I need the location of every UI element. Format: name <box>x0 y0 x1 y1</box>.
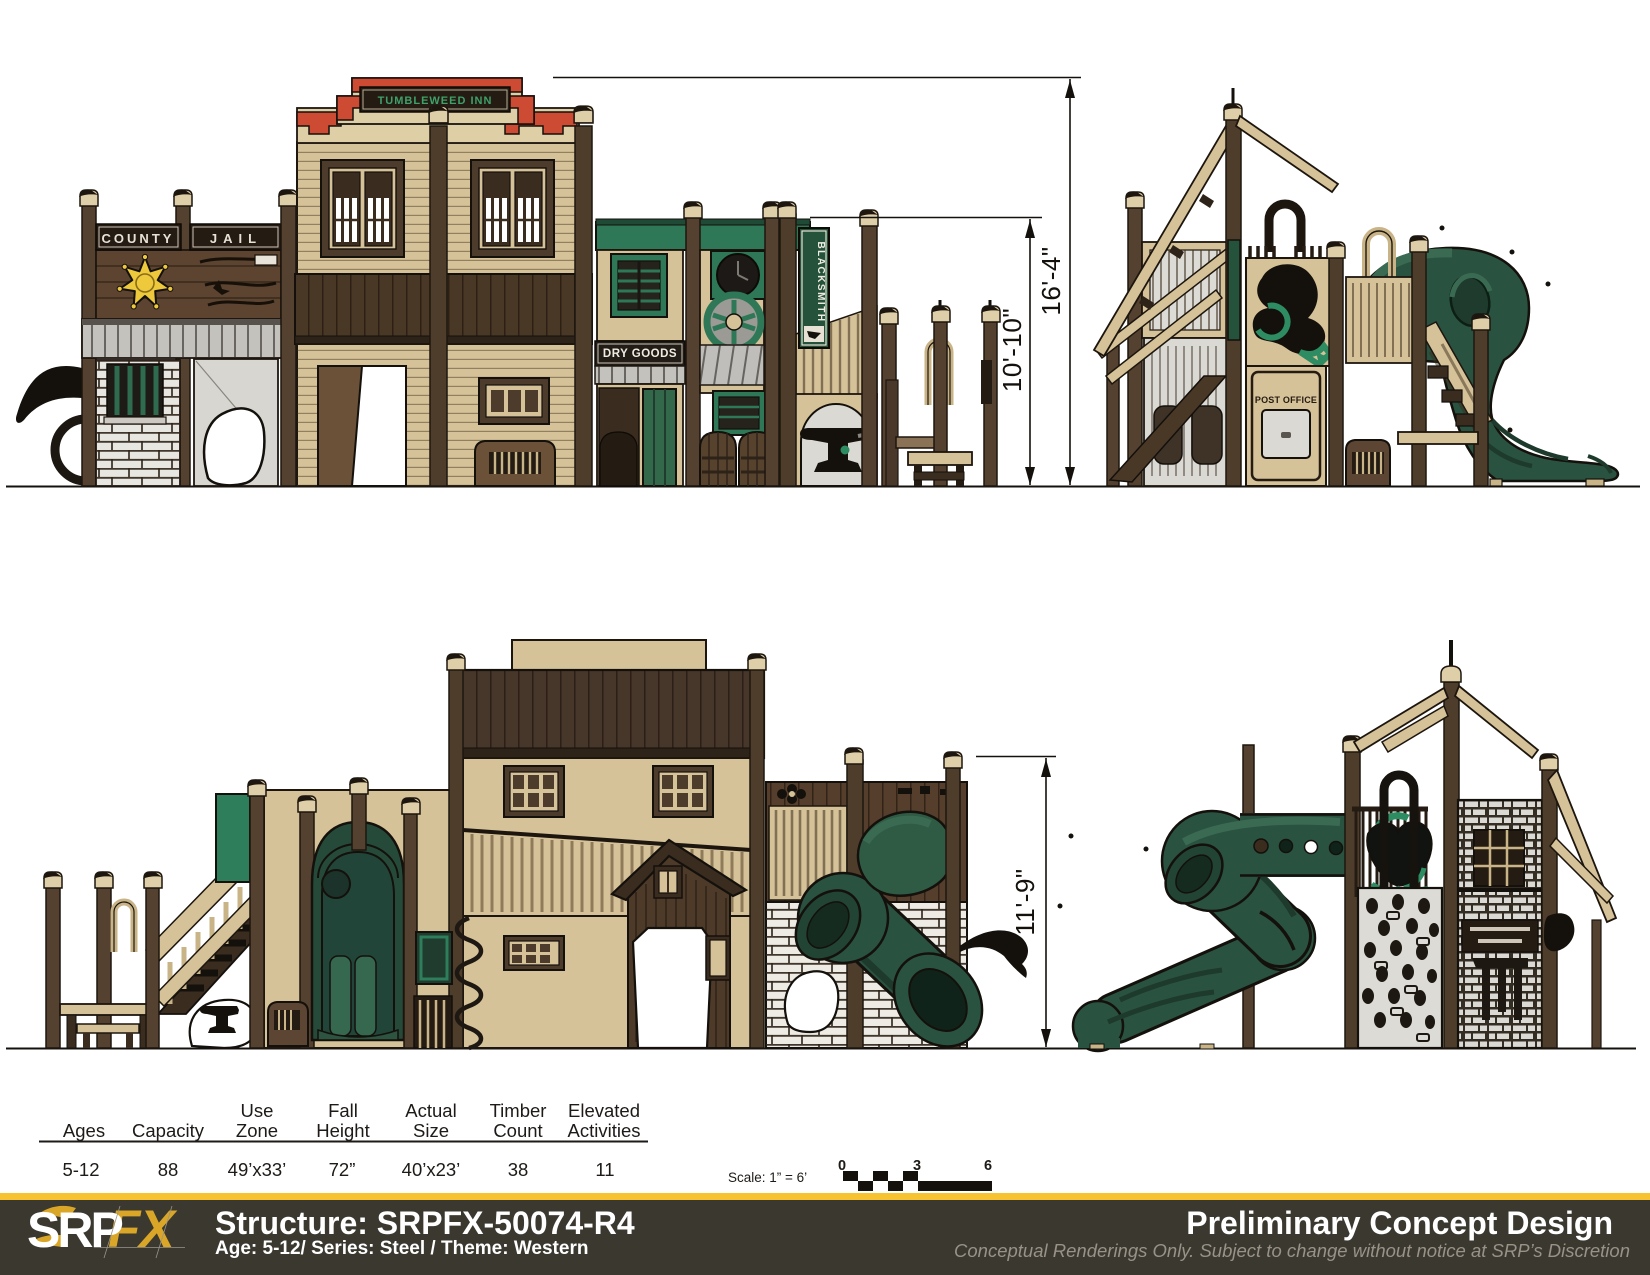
svg-text:Actual: Actual <box>405 1100 456 1121</box>
svg-text:DRY GOODS: DRY GOODS <box>603 348 677 360</box>
svg-text:Fall: Fall <box>328 1100 358 1121</box>
svg-text:BLACKSMITH: BLACKSMITH <box>815 241 826 322</box>
svg-text:10'-10": 10'-10" <box>997 308 1027 392</box>
svg-text:POST OFFICE: POST OFFICE <box>1255 395 1317 405</box>
svg-text:Conceptual Renderings Only. Su: Conceptual Renderings Only. Subject to c… <box>954 1240 1630 1261</box>
svg-text:11'-9": 11'-9" <box>1010 868 1040 935</box>
svg-text:Ages: Ages <box>63 1120 105 1141</box>
svg-text:JAIL: JAIL <box>210 231 262 246</box>
svg-text:Count: Count <box>493 1120 542 1141</box>
svg-text:16'-4": 16'-4" <box>1036 246 1066 315</box>
svg-text:49’x33’: 49’x33’ <box>228 1159 287 1180</box>
svg-text:88: 88 <box>158 1159 179 1180</box>
svg-text:Timber: Timber <box>490 1100 547 1121</box>
svg-text:Capacity: Capacity <box>132 1120 205 1141</box>
svg-text:11: 11 <box>595 1159 614 1180</box>
svg-text:Preliminary Concept Design: Preliminary Concept Design <box>1186 1205 1613 1241</box>
svg-text:TUMBLEWEED INN: TUMBLEWEED INN <box>378 95 493 107</box>
svg-text:Height: Height <box>316 1120 369 1141</box>
svg-text:Structure: SRPFX-50074-R4: Structure: SRPFX-50074-R4 <box>215 1205 635 1241</box>
svg-text:Elevated: Elevated <box>568 1100 640 1121</box>
svg-text:Age: 5-12/ Series: Steel / The: Age: 5-12/ Series: Steel / Theme: Wester… <box>215 1238 588 1259</box>
svg-text:Zone: Zone <box>236 1120 278 1141</box>
svg-text:Scale: 1” = 6’: Scale: 1” = 6’ <box>728 1170 807 1185</box>
svg-text:Activities: Activities <box>568 1120 641 1141</box>
svg-text:72”: 72” <box>329 1159 356 1180</box>
svg-text:COUNTY: COUNTY <box>102 231 175 246</box>
svg-text:6: 6 <box>984 1158 992 1174</box>
svg-text:40’x23’: 40’x23’ <box>402 1159 461 1180</box>
svg-text:SRP: SRP <box>27 1202 122 1258</box>
svg-text:5-12: 5-12 <box>62 1159 99 1180</box>
svg-text:Use: Use <box>241 1100 274 1121</box>
svg-text:Size: Size <box>413 1120 449 1141</box>
svg-text:38: 38 <box>508 1159 529 1180</box>
